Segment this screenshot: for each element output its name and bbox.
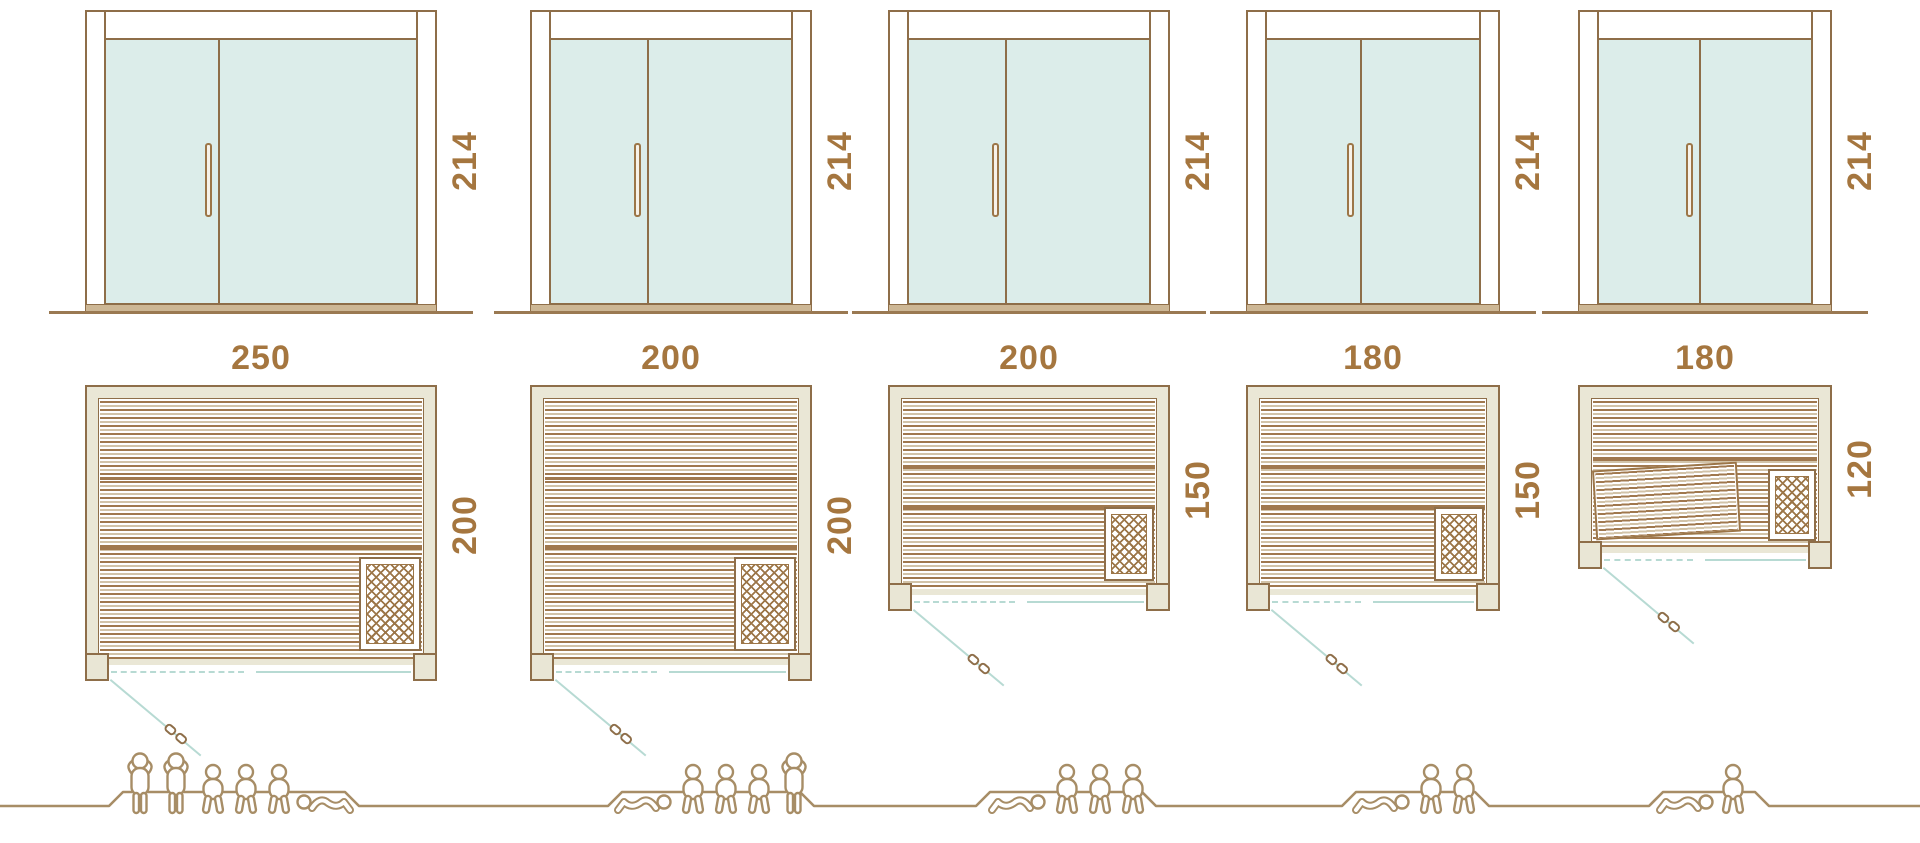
wall-stub-left [530, 653, 554, 681]
glass-divider [1360, 40, 1362, 303]
door-height-label: 214 [1504, 101, 1552, 221]
person-standing-icon [128, 754, 151, 814]
door-elevation [85, 10, 437, 312]
bench-edge [1261, 466, 1485, 469]
door-left-post [85, 10, 106, 306]
capacity-group-4 [1356, 765, 1474, 813]
person-sitting-icon [1090, 765, 1111, 813]
swing-door-handle-icon [163, 722, 189, 746]
lounger-bench [1592, 461, 1741, 539]
person-sitting-icon [716, 765, 737, 813]
door-elevation [530, 10, 812, 312]
ground-line [1542, 311, 1868, 314]
person-lying-icon [992, 796, 1045, 811]
swing-door-handle-icon [966, 652, 992, 676]
bench-edge [100, 477, 422, 480]
plan-interior [1591, 398, 1819, 547]
door-right-post [1479, 10, 1500, 306]
glass-front-solid-line [1373, 601, 1475, 603]
ground-line [49, 311, 473, 314]
glass-front-dashed-line [111, 671, 244, 673]
wall-stub-right [1146, 583, 1170, 611]
heater [1434, 507, 1484, 581]
glass-divider [647, 40, 649, 303]
bench-edge [545, 477, 797, 480]
glass-front-solid-line [256, 671, 411, 673]
door-height-label: 214 [1174, 101, 1222, 221]
person-lying-icon [298, 796, 351, 811]
swing-door-handle-icon [1656, 610, 1682, 634]
plan-depth-label: 150 [1174, 430, 1222, 550]
person-sitting-icon [1123, 765, 1144, 813]
person-standing-icon [782, 754, 805, 814]
door-lintel [907, 10, 1151, 40]
door-handle [1347, 143, 1354, 217]
glass-divider [218, 40, 220, 303]
bench-edge [903, 466, 1155, 469]
door-lintel [104, 10, 418, 40]
door-height-label: 214 [441, 101, 489, 221]
bench-edge [100, 547, 422, 550]
glass-panel [907, 38, 1151, 305]
wall-stub-right [413, 653, 437, 681]
person-sitting-icon [1421, 765, 1442, 813]
plan-interior [543, 398, 799, 659]
person-sitting-icon [1057, 765, 1078, 813]
door-right-post [1149, 10, 1170, 306]
capacity-group-1 [128, 754, 350, 814]
door-right-post [791, 10, 812, 306]
sauna-comparison-diagram: 214 250 200 [0, 0, 1920, 843]
floor-plan [888, 385, 1170, 595]
heater [1104, 507, 1154, 581]
wall-stub-left [1578, 541, 1602, 569]
wall-stub-right [1476, 583, 1500, 611]
glass-front-dashed-line [1272, 601, 1361, 603]
door-right-post [1811, 10, 1832, 306]
glass-front-solid-line [1027, 601, 1144, 603]
door-handle [1686, 143, 1693, 217]
glass-panel [104, 38, 418, 305]
door-swing-line [1603, 567, 1695, 644]
person-lying-icon [1660, 796, 1713, 811]
heater [1768, 469, 1816, 541]
glass-divider [1699, 40, 1701, 303]
door-swing-line [913, 609, 1005, 686]
person-sitting-icon [236, 765, 257, 813]
floor-plan [1578, 385, 1832, 553]
ground-line [494, 311, 848, 314]
wall-stub-left [1246, 583, 1270, 611]
person-sitting-icon [683, 765, 704, 813]
door-lintel [1265, 10, 1481, 40]
person-lying-icon [1356, 796, 1409, 811]
heater-grill [366, 564, 414, 644]
door-elevation [1246, 10, 1500, 312]
person-sitting-icon [269, 765, 290, 813]
person-sitting-icon [1454, 765, 1475, 813]
person-sitting-icon [1723, 765, 1744, 813]
heater-grill [1775, 476, 1809, 534]
capacity-group-3 [992, 765, 1143, 813]
capacity-group-2 [618, 754, 806, 814]
bench-edge [1593, 458, 1817, 461]
heater [359, 557, 421, 651]
lounger-slats [1595, 464, 1737, 537]
plan-width-label: 180 [1246, 338, 1500, 378]
heater [734, 557, 796, 651]
plan-depth-label: 150 [1504, 430, 1552, 550]
person-sitting-icon [749, 765, 770, 813]
glass-front-dashed-line [914, 601, 1015, 603]
door-left-post [888, 10, 909, 306]
glass-panel [1597, 38, 1813, 305]
plan-width-label: 250 [85, 338, 437, 378]
glass-front-dashed-line [1604, 559, 1693, 561]
plan-depth-label: 120 [1836, 409, 1884, 529]
door-height-label: 214 [1836, 101, 1884, 221]
door-handle [992, 143, 999, 217]
heater-grill [1441, 514, 1477, 574]
plan-depth-label: 200 [816, 465, 864, 585]
plan-interior [98, 398, 424, 659]
ground-line [852, 311, 1206, 314]
heater-grill [1111, 514, 1147, 574]
plan-interior [1259, 398, 1487, 589]
capacity-group-5 [1660, 765, 1743, 813]
wall-stub-left [888, 583, 912, 611]
person-lying-icon [618, 796, 671, 811]
ground-line [1210, 311, 1536, 314]
plan-width-label: 200 [888, 338, 1170, 378]
glass-panel [549, 38, 793, 305]
door-height-label: 214 [816, 101, 864, 221]
capacity-band [0, 745, 1920, 843]
swing-door-handle-icon [608, 722, 634, 746]
bench-edge [545, 547, 797, 550]
swing-door-handle-icon [1324, 652, 1350, 676]
door-left-post [1246, 10, 1267, 306]
floor-plan [530, 385, 812, 665]
glass-front-solid-line [1705, 559, 1807, 561]
plan-width-label: 200 [530, 338, 812, 378]
heater-grill [741, 564, 789, 644]
door-lintel [549, 10, 793, 40]
door-lintel [1597, 10, 1813, 40]
person-sitting-icon [203, 765, 224, 813]
floor-plan [1246, 385, 1500, 595]
door-swing-line [1271, 609, 1363, 686]
plan-width-label: 180 [1578, 338, 1832, 378]
door-elevation [888, 10, 1170, 312]
glass-front-solid-line [669, 671, 786, 673]
glass-panel [1265, 38, 1481, 305]
person-standing-icon [164, 754, 187, 814]
glass-divider [1005, 40, 1007, 303]
wall-stub-right [1808, 541, 1832, 569]
plan-interior [901, 398, 1157, 589]
plan-depth-label: 200 [441, 465, 489, 585]
door-right-post [416, 10, 437, 306]
wall-stub-right [788, 653, 812, 681]
door-elevation [1578, 10, 1832, 312]
door-left-post [530, 10, 551, 306]
door-left-post [1578, 10, 1599, 306]
door-handle [634, 143, 641, 217]
glass-front-dashed-line [556, 671, 657, 673]
door-handle [205, 143, 212, 217]
wall-stub-left [85, 653, 109, 681]
floor-plan [85, 385, 437, 665]
